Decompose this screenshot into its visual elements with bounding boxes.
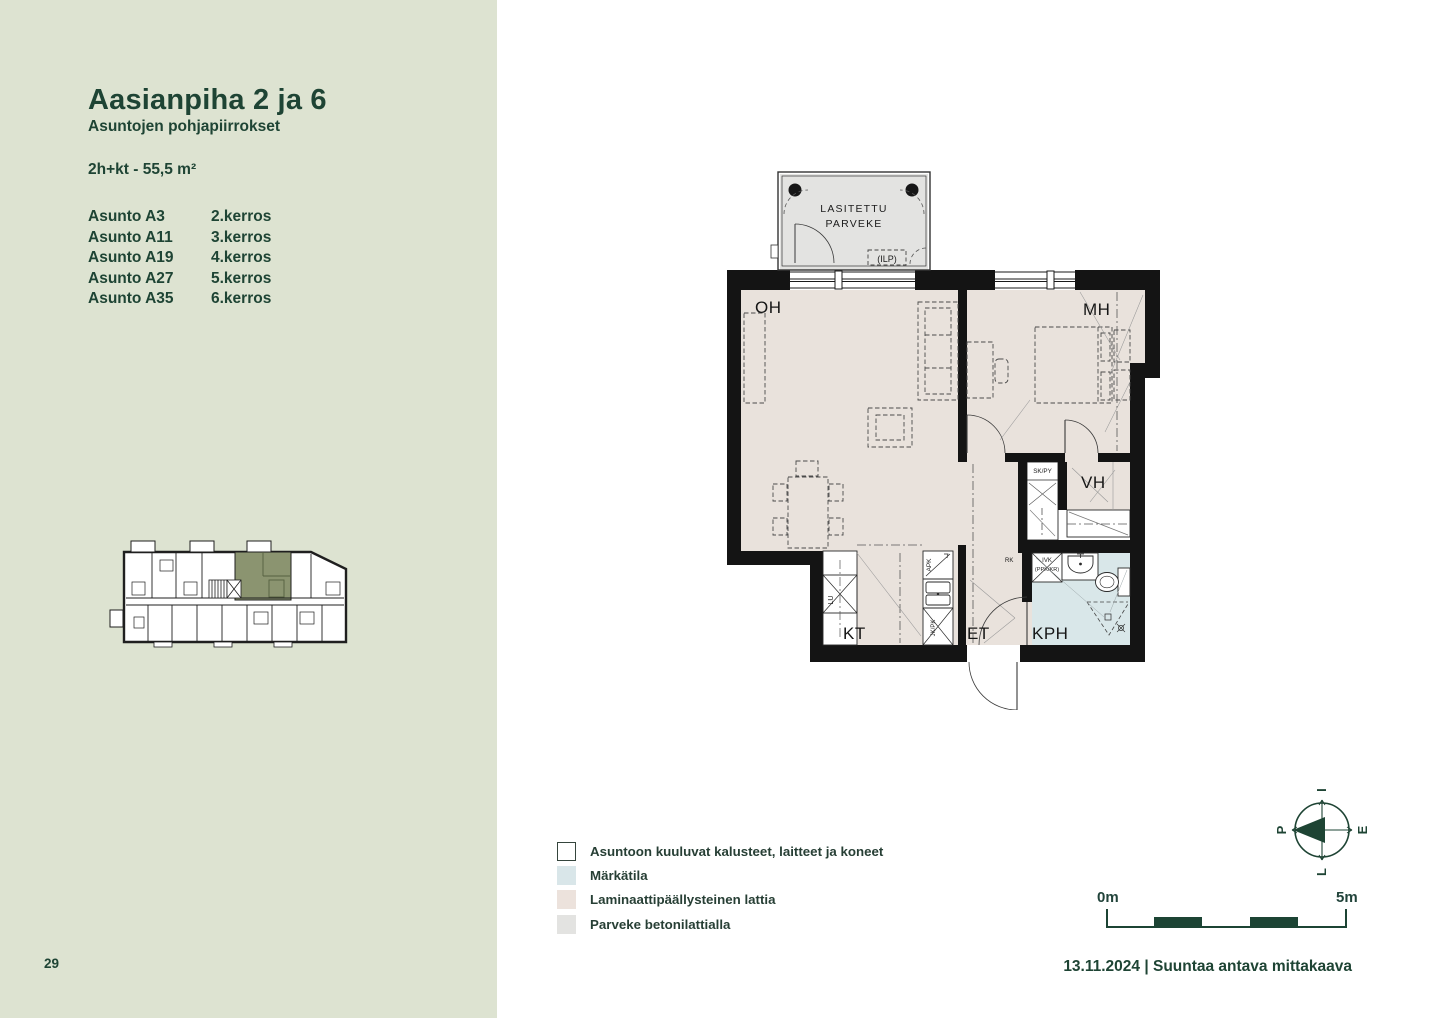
brochure-page: Aasianpiha 2 ja 6 Asuntojen pohjapiirrok…	[0, 0, 1440, 1018]
list-item: Asunto A32.kerros	[88, 207, 271, 228]
room-label-oh: OH	[755, 298, 782, 317]
legend-item: Laminaattipäällysteinen lattia	[557, 890, 883, 910]
compass-label-east: I	[1314, 788, 1329, 792]
ilp-label: (ILP)	[877, 254, 897, 264]
list-item: Asunto A356.kerros	[88, 289, 271, 310]
unit-name: Asunto A19	[88, 248, 211, 269]
legend-item: Parveke betonilattialla	[557, 914, 883, 934]
legend-label: Parveke betonilattialla	[590, 917, 730, 932]
legend-swatch-balcony	[557, 915, 576, 934]
room-label-mh: MH	[1083, 300, 1110, 319]
skpy-label: SK/PY	[1033, 468, 1052, 475]
page-title: Aasianpiha 2 ja 6	[88, 84, 327, 117]
scale-bar	[1106, 908, 1347, 928]
toilet-bowl	[1096, 573, 1119, 592]
scale-baseline	[1106, 926, 1347, 928]
scale-start-label: 0m	[1097, 889, 1119, 906]
balcony-light	[789, 184, 802, 197]
room-label-kt: KT	[843, 624, 866, 643]
unit-floor: 2.kerros	[211, 208, 271, 225]
building-key-plan	[104, 521, 354, 673]
unit-name: Asunto A35	[88, 289, 211, 310]
list-item: Asunto A275.kerros	[88, 269, 271, 290]
compass-label-north: P	[1274, 825, 1289, 834]
legend-swatch-wet-room	[557, 866, 576, 885]
legend-swatch-laminate	[557, 890, 576, 909]
unit-list: Asunto A32.kerros Asunto A113.kerros Asu…	[88, 207, 271, 310]
unit-name: Asunto A27	[88, 269, 211, 290]
scale-block	[1250, 917, 1298, 926]
floorplan: (ILP) LASITETTU PARVEKE LU APK JK/PK	[700, 150, 1180, 710]
sidebar: Aasianpiha 2 ja 6 Asuntojen pohjapiirrok…	[0, 0, 497, 1018]
compass-label-west: L	[1314, 868, 1329, 876]
unit-name: Asunto A11	[88, 228, 211, 249]
room-label-vh: VH	[1081, 473, 1106, 492]
apartment-type: 2h+kt - 55,5 m²	[88, 161, 196, 179]
ppkkr-label: (PPK/KR)	[1035, 567, 1059, 573]
north-arrow-icon	[1293, 817, 1325, 843]
legend-item: Asuntoon kuuluvat kalusteet, laitteet ja…	[557, 841, 883, 861]
room-label-kph: KPH	[1032, 624, 1068, 643]
legend-item: Märkätila	[557, 865, 883, 885]
list-item: Asunto A113.kerros	[88, 228, 271, 249]
balcony-label-1: LASITETTU	[820, 203, 887, 215]
rk-label: RK	[1005, 558, 1013, 564]
toilet-tank	[1118, 568, 1130, 596]
legend-swatch-fixtures	[557, 842, 576, 861]
unit-floor: 5.kerros	[211, 270, 271, 287]
date-line: 13.11.2024 | Suuntaa antava mittakaava	[1063, 958, 1352, 976]
unit-floor: 4.kerros	[211, 249, 271, 266]
legend-label: Märkätila	[590, 868, 648, 883]
compass-rose: P I E L	[1274, 782, 1370, 878]
list-item: Asunto A194.kerros	[88, 248, 271, 269]
compass-label-south: E	[1355, 825, 1370, 834]
scale-end-label: 5m	[1336, 889, 1358, 906]
scale-tick	[1345, 909, 1347, 928]
unit-name: Asunto A3	[88, 207, 211, 228]
legend: Asuntoon kuuluvat kalusteet, laitteet ja…	[557, 841, 883, 939]
fridge-label: JK/PK	[931, 620, 937, 637]
stove-label: LU	[828, 596, 835, 605]
ivk-label: IVK	[1042, 558, 1052, 564]
legend-label: Asuntoon kuuluvat kalusteet, laitteet ja…	[590, 844, 883, 859]
dishwasher-label: APK	[926, 558, 933, 572]
page-number: 29	[44, 956, 59, 971]
legend-label: Laminaattipäällysteinen lattia	[590, 892, 775, 907]
page-subtitle: Asuntojen pohjapiirrokset	[88, 118, 280, 136]
unit-floor: 3.kerros	[211, 229, 271, 246]
room-label-et: ET	[967, 624, 990, 643]
unit-floor: 6.kerros	[211, 290, 271, 307]
balcony-label-2: PARVEKE	[825, 218, 882, 230]
balcony-light	[906, 184, 919, 197]
scale-block	[1154, 917, 1202, 926]
scale-tick	[1106, 909, 1108, 928]
